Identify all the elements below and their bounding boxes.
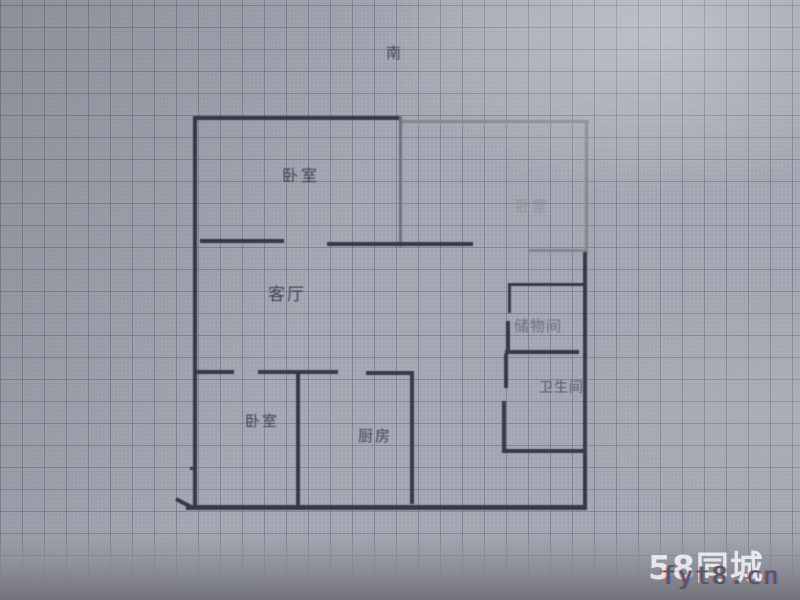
screen-glare-overlay (0, 0, 800, 600)
site-watermark-text: fyt8.cn (661, 563, 780, 588)
photo-of-floor-plan: 南 卧室 卧室 客厅 储物间 (0, 0, 800, 600)
